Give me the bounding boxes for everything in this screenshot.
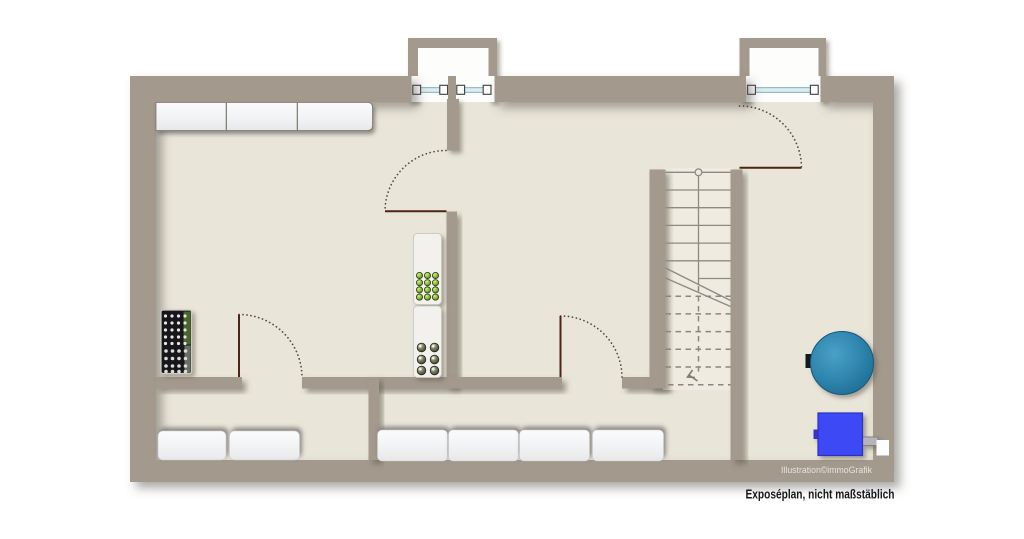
svg-text:Exposéplan, nicht maßstäblich: Exposéplan, nicht maßstäblich — [746, 488, 895, 502]
svg-text:Illustration©immoGrafik: Illustration©immoGrafik — [781, 465, 872, 475]
